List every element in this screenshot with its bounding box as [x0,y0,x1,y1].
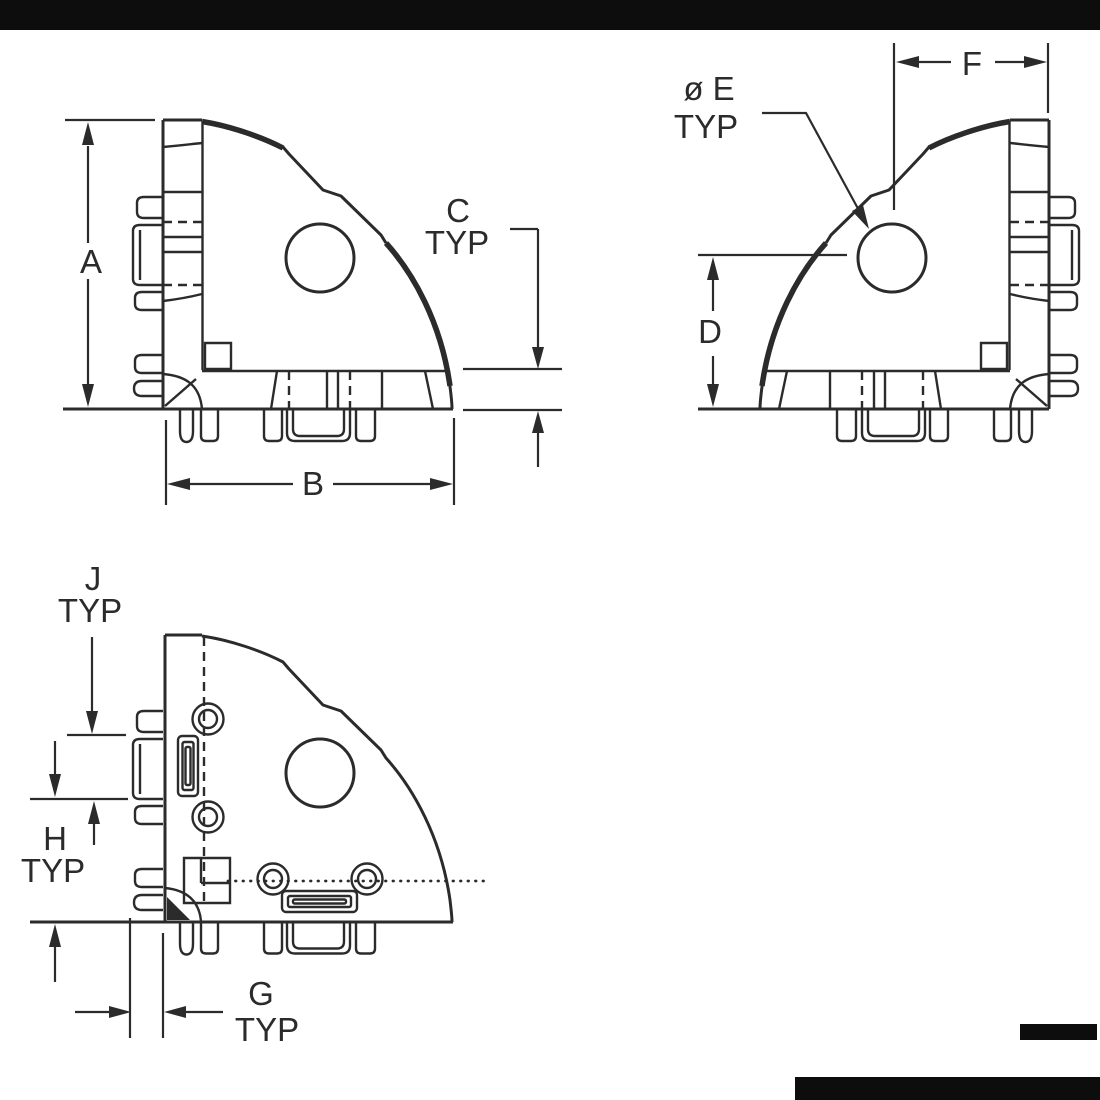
dim-label-c-typ: TYP [425,224,489,261]
serrated-slot-left [178,736,198,796]
view-mirrored: D F ø E TYP [674,43,1079,442]
dimension-H: H TYP [21,741,128,982]
dimension-G: G TYP [75,918,299,1048]
view-front: A B C TYP [63,120,562,505]
corner-hole [286,739,354,807]
arrowhead-up [88,801,100,824]
dim-label-f: F [962,45,982,82]
arrowhead-left [164,1006,186,1018]
dimension-F: F [894,43,1048,210]
dimension-C: C TYP [425,192,562,467]
arrowhead-down [82,384,94,407]
corner-square-detail [184,858,230,903]
arrowhead-down [532,347,544,369]
engineering-drawing: A B C TYP [0,0,1100,1100]
dim-label-h-typ: TYP [21,852,85,889]
arrowhead-right [109,1006,131,1018]
dim-label-g-typ: TYP [235,1011,299,1048]
dim-label-e: ø E [683,70,734,107]
arrowhead-left [167,478,190,490]
arrowhead-up [707,257,719,280]
dim-label-a: A [80,243,102,280]
dimension-E: ø E TYP [674,70,869,229]
arrowhead-right [430,478,453,490]
dim-label-e-typ: TYP [674,108,738,145]
arrowhead-down [707,384,719,407]
arrowhead-up [49,924,61,947]
arrowhead-up [532,411,544,433]
dimension-B: B [166,418,454,505]
dim-label-b: B [302,465,324,502]
arrowhead-leader [852,205,869,229]
dim-label-j-typ: TYP [58,592,122,629]
arrowhead-left [896,56,919,68]
drawing-canvas: A B C TYP [0,0,1100,1100]
arrowhead-down [86,711,98,734]
view-back: J TYP H TYP [21,560,487,1048]
dim-label-g: G [248,975,274,1012]
dim-label-d: D [698,313,722,350]
arrowhead-up [82,122,94,145]
dimension-J: J TYP [58,560,126,845]
corner-foot [165,888,201,921]
arrowhead-right [1024,56,1047,68]
arrowhead-down [49,774,61,797]
serrated-slot-bottom [282,891,357,912]
dimension-A: A [65,120,155,407]
